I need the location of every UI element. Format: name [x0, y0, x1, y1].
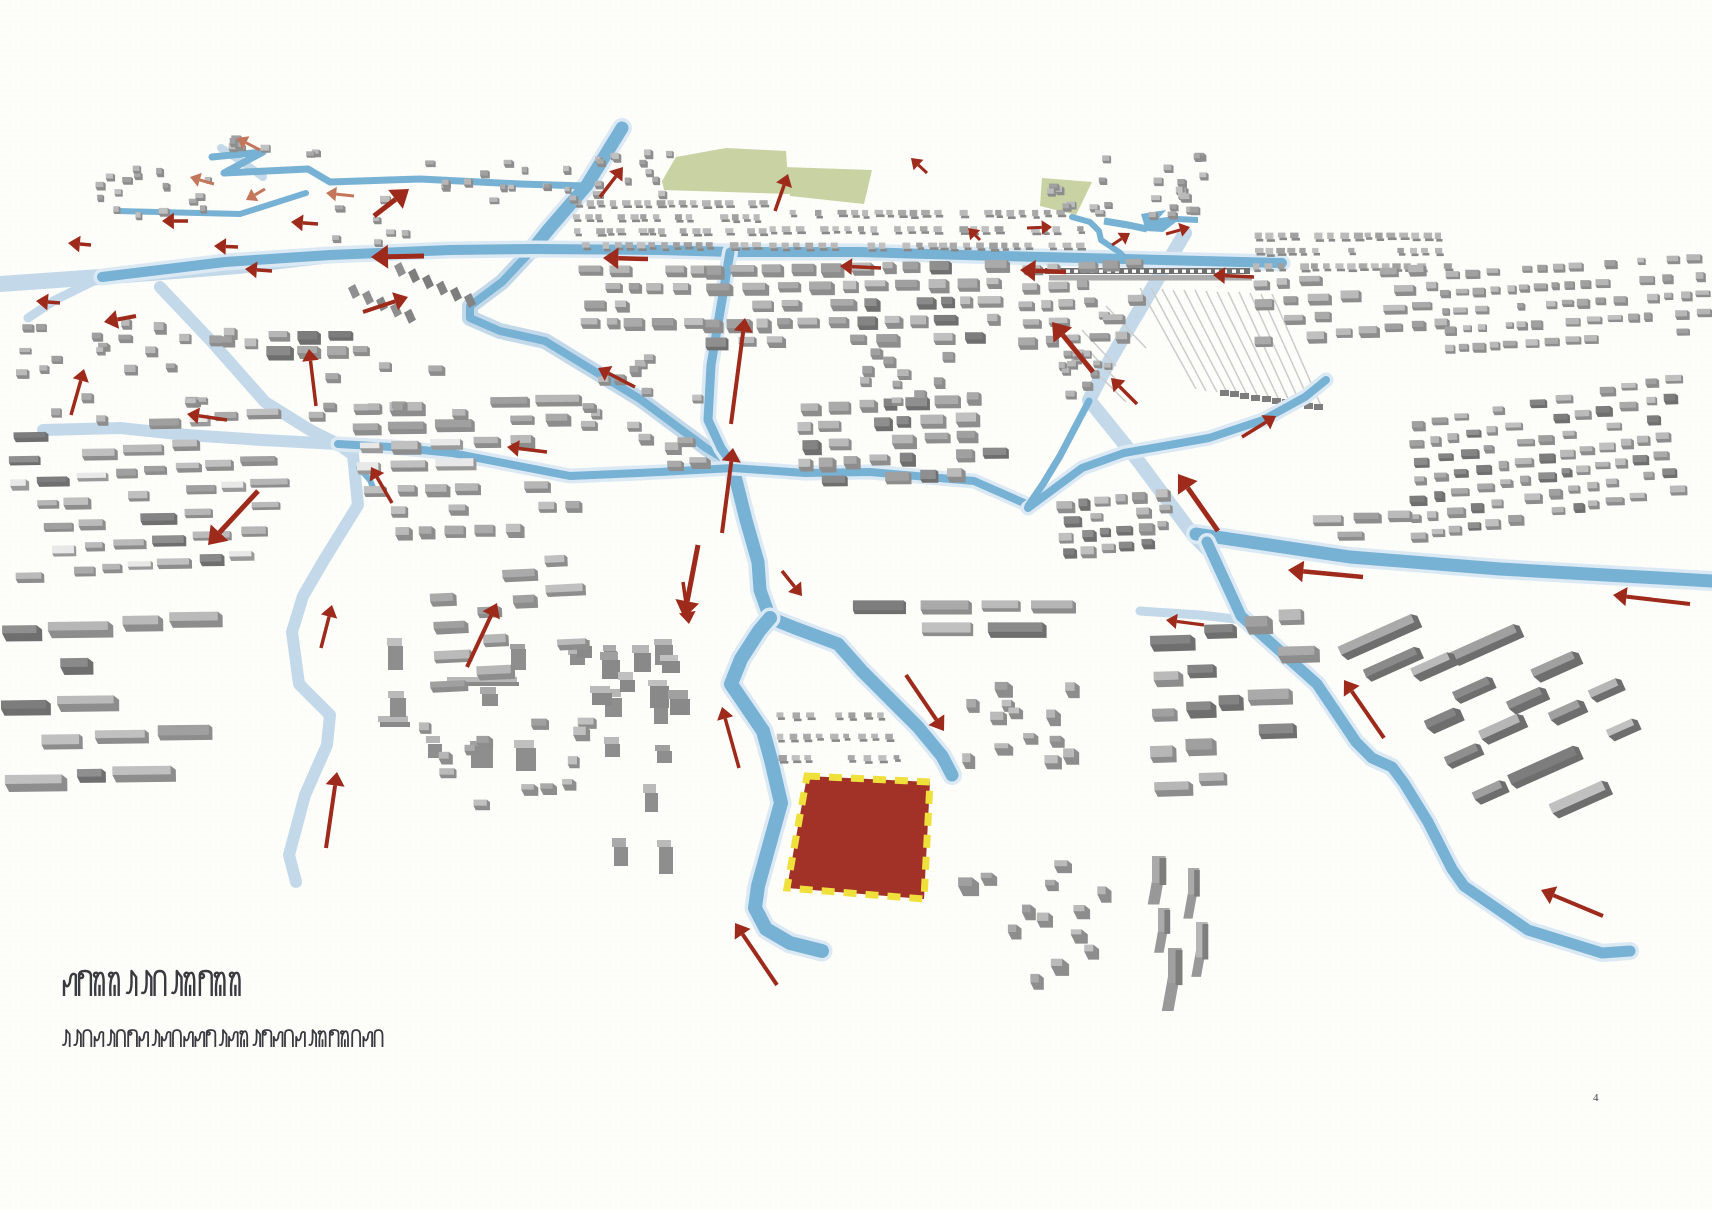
svg-text:4: 4	[1593, 1092, 1599, 1104]
